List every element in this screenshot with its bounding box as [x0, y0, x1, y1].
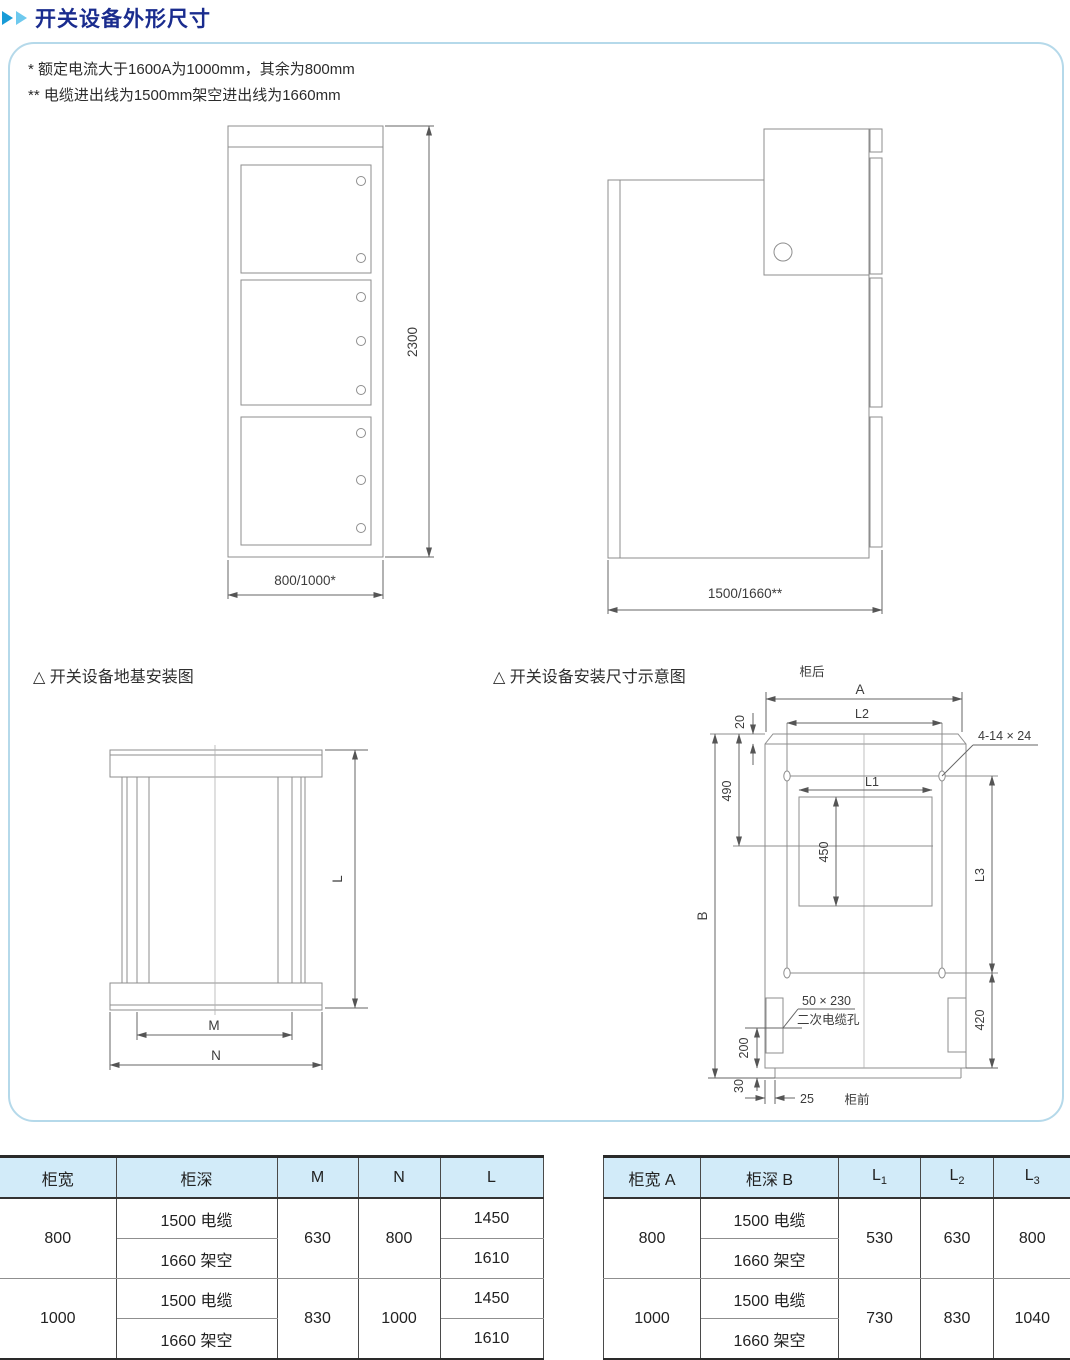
dim-L3-label: L3 — [973, 868, 987, 882]
dim-L1-label: L1 — [865, 775, 879, 789]
side-depth-dim-label: 1500/1660** — [708, 586, 783, 601]
value-cell: 1500 电缆 — [701, 1279, 839, 1319]
dim-200-label: 200 — [737, 1038, 751, 1059]
front-width-dim-label: 800/1000* — [274, 573, 336, 588]
installation-diagram-title: △ 开关设备安装尺寸示意图 — [493, 663, 686, 687]
header-sub: 3 — [1034, 1176, 1040, 1188]
cabinet-front-outline — [228, 126, 383, 557]
page-title: 开关设备外形尺寸 — [35, 3, 211, 33]
value-cell: 1660 架空 — [116, 1319, 277, 1360]
col-header: L2 — [921, 1157, 994, 1199]
dim-B-label: B — [695, 911, 710, 920]
header-base: L — [1025, 1167, 1034, 1184]
value-cell: 1610 — [440, 1239, 543, 1279]
dim-20-label: 20 — [733, 715, 747, 729]
dim-420-label: 420 — [973, 1010, 987, 1031]
dim-L2-label: L2 — [855, 707, 869, 721]
cable-hole-name-label: 二次电缆孔 — [797, 1013, 860, 1027]
value-cell: 1000 — [0, 1279, 116, 1360]
value-cell: 800 — [994, 1198, 1070, 1279]
value-cell: 730 — [839, 1279, 921, 1360]
arrow-right-icon — [16, 11, 27, 25]
col-header: 柜深 — [116, 1157, 277, 1199]
installation-dimensions — [708, 692, 1038, 1104]
value-cell: 630 — [277, 1198, 358, 1279]
col-header: N — [358, 1157, 440, 1199]
value-cell: 1500 电缆 — [116, 1198, 277, 1239]
value-cell: 1450 — [440, 1198, 543, 1239]
foundation-diagram-title: △ 开关设备地基安装图 — [33, 663, 194, 687]
value-cell: 800 — [358, 1198, 440, 1279]
value-cell: 800 — [604, 1198, 701, 1279]
cable-hole-size-label: 50 × 230 — [802, 994, 851, 1008]
dimension-table-installation: 柜宽 A 柜深 B L1 L2 L3 800 1500 电缆 530 630 8… — [603, 1155, 1070, 1360]
rear-label: 柜后 — [799, 665, 824, 679]
col-header: 柜宽 — [0, 1157, 116, 1199]
page-header: 开关设备外形尺寸 — [2, 3, 211, 33]
catalog-page: 开关设备外形尺寸 * 额定电流大于1600A为1000mm，其余为800mm *… — [0, 0, 1070, 1360]
dim-N-label: N — [211, 1048, 221, 1063]
dim-30-label: 30 — [732, 1079, 746, 1093]
header-sub: 2 — [958, 1176, 964, 1188]
col-header: L1 — [839, 1157, 921, 1199]
dim-25-label: 25 — [800, 1092, 814, 1106]
dim-M-label: M — [208, 1018, 219, 1033]
foundation-drawing: L M N — [80, 720, 380, 1090]
value-cell: 1000 — [358, 1279, 440, 1360]
col-header: L — [440, 1157, 543, 1199]
value-cell: 1660 架空 — [701, 1239, 839, 1279]
value-cell: 1610 — [440, 1319, 543, 1360]
note-cable-entry: ** 电缆进出线为1500mm架空进出线为1660mm — [28, 84, 341, 105]
dimension-table-foundation: 柜宽 柜深 M N L 800 1500 电缆 630 800 1450 166… — [0, 1155, 544, 1360]
note-rated-current: * 额定电流大于1600A为1000mm，其余为800mm — [28, 58, 355, 79]
dim-L-label: L — [330, 875, 345, 883]
col-header: L3 — [994, 1157, 1070, 1199]
side-view-drawing: 1500/1660** — [590, 115, 900, 625]
col-header: 柜宽 A — [604, 1157, 701, 1199]
value-cell: 1500 电缆 — [701, 1198, 839, 1239]
value-cell: 1500 电缆 — [116, 1279, 277, 1319]
installation-drawing: 柜后 A L2 20 4-14 × 24 490 L1 450 B L3 420… — [690, 660, 1050, 1110]
value-cell: 830 — [921, 1279, 994, 1360]
col-header: M — [277, 1157, 358, 1199]
value-cell: 1450 — [440, 1279, 543, 1319]
foundation-channels — [110, 745, 322, 1015]
front-height-dim-label: 2300 — [405, 327, 420, 357]
value-cell: 1040 — [994, 1279, 1070, 1360]
dim-450-label: 450 — [817, 842, 831, 863]
front-label: 柜前 — [844, 1092, 869, 1107]
front-view-dimensions — [228, 126, 434, 599]
value-cell: 800 — [0, 1198, 116, 1279]
side-view-dimensions — [608, 550, 882, 614]
dim-A-label: A — [855, 682, 864, 697]
col-header: 柜深 B — [701, 1157, 839, 1199]
value-cell: 530 — [839, 1198, 921, 1279]
value-cell: 1660 架空 — [701, 1319, 839, 1360]
value-cell: 830 — [277, 1279, 358, 1360]
front-view-drawing: 2300 800/1000* — [210, 115, 460, 610]
hole-spec-label: 4-14 × 24 — [978, 729, 1031, 743]
dim-490-label: 490 — [720, 781, 734, 802]
value-cell: 1000 — [604, 1279, 701, 1360]
header-base: L — [872, 1167, 881, 1184]
value-cell: 1660 架空 — [116, 1239, 277, 1279]
cabinet-side-outline — [608, 129, 882, 558]
arrow-right-icon — [2, 11, 13, 25]
value-cell: 630 — [921, 1198, 994, 1279]
header-sub: 1 — [881, 1176, 887, 1188]
